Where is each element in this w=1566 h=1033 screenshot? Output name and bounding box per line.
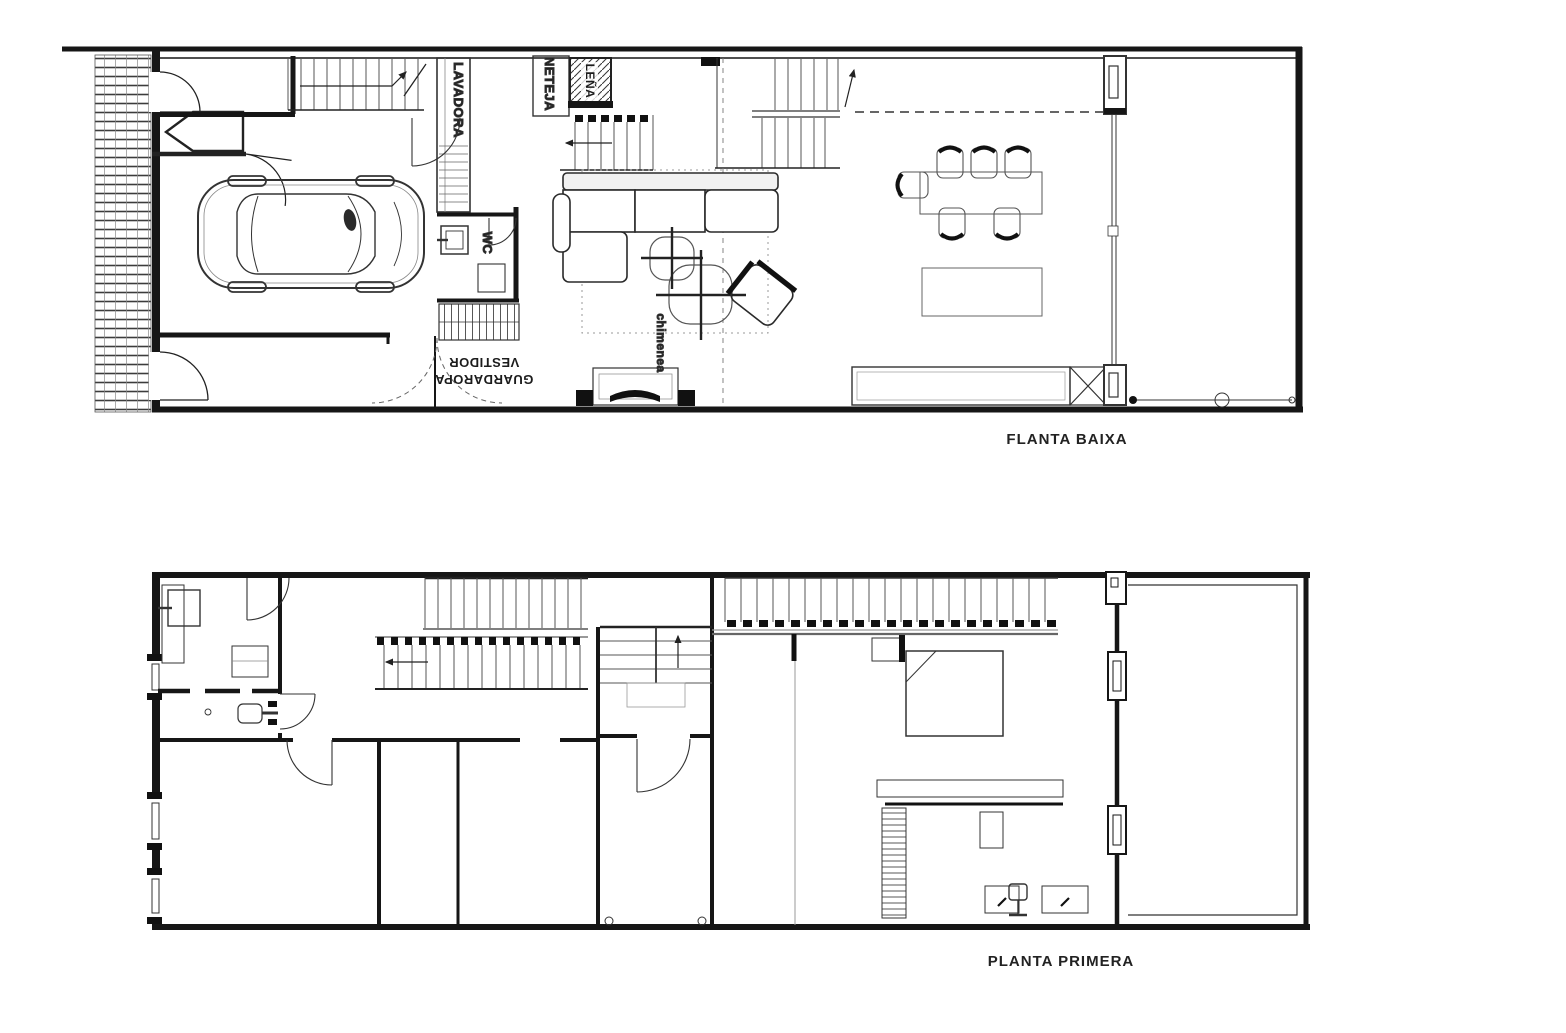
chimenea-label: chimenea bbox=[654, 313, 668, 372]
laundry-closet: LAVADORA bbox=[437, 58, 470, 212]
wardrobe-area: GUARDAROPA VESTIDOR bbox=[372, 304, 533, 403]
first-floor-caption: PLANTA PRIMERA bbox=[988, 953, 1135, 970]
terrace bbox=[1128, 585, 1297, 915]
desk-chair bbox=[1009, 884, 1027, 915]
clothesline bbox=[1129, 393, 1295, 407]
bed bbox=[906, 651, 1003, 736]
plan-sheet: LAVADORA NETEJA LEÑA bbox=[0, 0, 1566, 1033]
first-floor-stair-upper bbox=[423, 578, 588, 629]
first-floor-stair-lower bbox=[375, 637, 588, 689]
kitchen-island bbox=[922, 268, 1042, 316]
ground-floor-plan: LAVADORA NETEJA LEÑA bbox=[62, 47, 1303, 448]
guardaropa-label: GUARDAROPA bbox=[435, 372, 534, 387]
lavadora-label: LAVADORA bbox=[451, 62, 466, 138]
cleaning-closet: NETEJA bbox=[533, 56, 569, 116]
wc-label: WC bbox=[480, 232, 495, 255]
floor-plan-drawing: LAVADORA NETEJA LEÑA bbox=[0, 0, 1566, 1033]
vestidor-label: VESTIDOR bbox=[449, 355, 520, 370]
pivot-circles bbox=[605, 917, 706, 925]
bathroom bbox=[205, 701, 278, 725]
stairs-right bbox=[701, 57, 854, 168]
firewood-box: LEÑA bbox=[568, 58, 613, 108]
kitchen-counter bbox=[852, 367, 1070, 405]
first-floor-plan: PLANTA PRIMERA bbox=[147, 572, 1310, 970]
stairs-central bbox=[560, 115, 653, 170]
lena-label: LEÑA bbox=[583, 64, 598, 99]
shaft-x-box bbox=[1070, 367, 1106, 405]
stairs-upper-left bbox=[288, 58, 426, 110]
living-area bbox=[553, 170, 797, 340]
dining-set bbox=[898, 148, 1043, 239]
car-top-view-icon bbox=[198, 176, 424, 292]
master-bedroom bbox=[794, 634, 1088, 925]
armchair bbox=[726, 259, 797, 328]
sofa bbox=[553, 173, 778, 282]
interior-walls-first bbox=[158, 578, 712, 927]
long-stair-right bbox=[712, 578, 1058, 634]
wc-room: WC bbox=[437, 218, 516, 292]
terrace-window-wall bbox=[1106, 572, 1126, 927]
desk-area bbox=[877, 780, 1088, 918]
reference-lines bbox=[723, 58, 1104, 405]
ground-floor-caption: FLANTA BAIXA bbox=[1006, 431, 1127, 448]
switchback-stair bbox=[600, 627, 712, 707]
dressing-room bbox=[158, 585, 268, 677]
sidewalk-hatch bbox=[95, 55, 151, 412]
entry-porch bbox=[152, 72, 292, 400]
neteja-label: NETEJA bbox=[542, 57, 557, 111]
garage bbox=[198, 176, 424, 292]
glass-wall bbox=[1104, 56, 1126, 405]
fireplace: chimenea bbox=[576, 313, 695, 406]
